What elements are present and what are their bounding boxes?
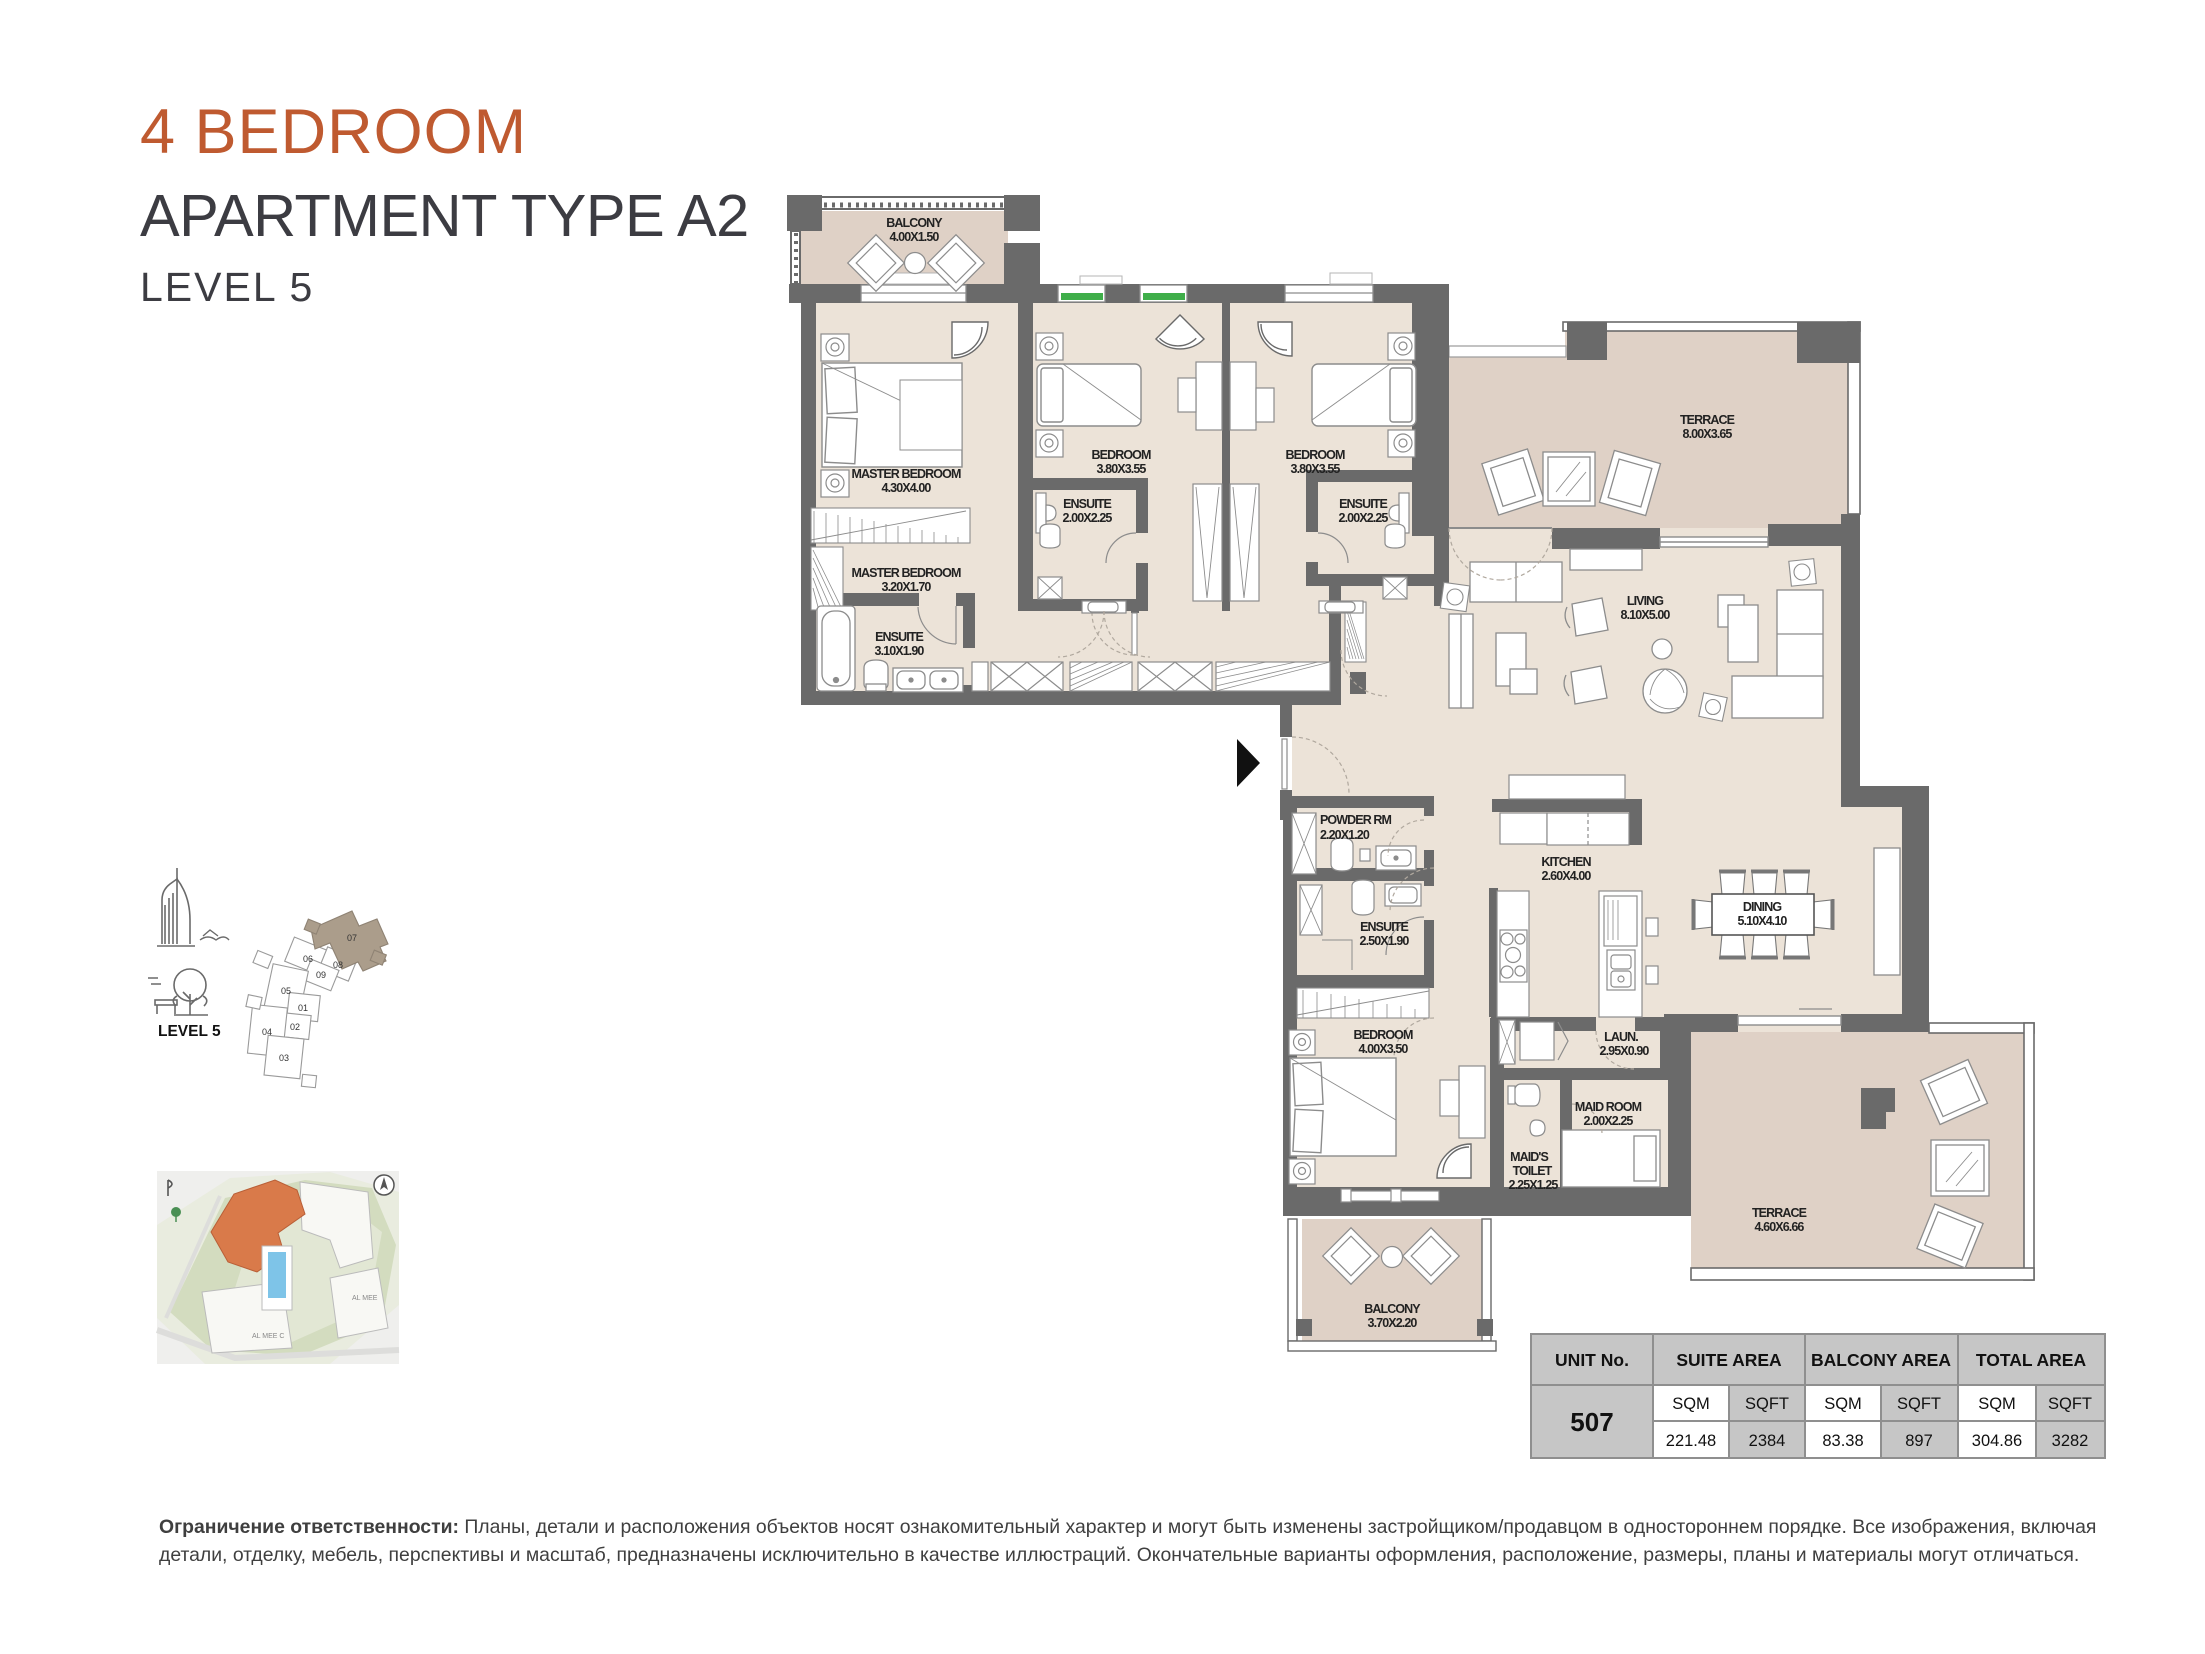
svg-text:UNIT No.: UNIT No.: [1555, 1350, 1629, 1370]
svg-text:221.48: 221.48: [1666, 1432, 1716, 1450]
svg-text:05: 05: [281, 986, 291, 996]
svg-text:SQM: SQM: [1672, 1395, 1710, 1413]
svg-text:507: 507: [1570, 1407, 1613, 1437]
svg-text:3.10X1.90: 3.10X1.90: [875, 644, 925, 658]
svg-text:3.70X2.20: 3.70X2.20: [1368, 1316, 1418, 1330]
svg-text:08: 08: [333, 960, 343, 970]
svg-text:07: 07: [347, 933, 357, 943]
svg-text:MASTER BEDROOM: MASTER BEDROOM: [852, 566, 961, 580]
svg-text:BALCONY AREA: BALCONY AREA: [1811, 1350, 1951, 1370]
svg-text:3.20X1.70: 3.20X1.70: [882, 580, 932, 594]
svg-text:2.25X1.25: 2.25X1.25: [1509, 1178, 1559, 1192]
svg-text:2.95X0.90: 2.95X0.90: [1600, 1044, 1650, 1058]
svg-text:LAUN.: LAUN.: [1604, 1030, 1638, 1044]
svg-text:TOTAL AREA: TOTAL AREA: [1976, 1350, 2087, 1370]
svg-text:897: 897: [1905, 1432, 1933, 1450]
svg-text:KITCHEN: KITCHEN: [1541, 855, 1591, 869]
svg-text:MAID'S: MAID'S: [1510, 1150, 1548, 1164]
svg-text:TERRACE: TERRACE: [1680, 413, 1735, 427]
svg-text:TERRACE: TERRACE: [1752, 1206, 1807, 1220]
svg-text:ENSUITE: ENSUITE: [1063, 497, 1111, 511]
svg-text:LIVING: LIVING: [1627, 594, 1663, 608]
svg-text:2.00X2.25: 2.00X2.25: [1339, 511, 1389, 525]
svg-text:MASTER BEDROOM: MASTER BEDROOM: [852, 467, 961, 481]
svg-text:SQFT: SQFT: [2048, 1395, 2092, 1413]
svg-text:83.38: 83.38: [1822, 1432, 1863, 1450]
svg-text:5.10X4.10: 5.10X4.10: [1738, 914, 1788, 928]
svg-text:01: 01: [298, 1003, 308, 1013]
svg-text:8.00X3.65: 8.00X3.65: [1683, 427, 1733, 441]
svg-text:SUITE AREA: SUITE AREA: [1676, 1350, 1782, 1370]
svg-text:8.10X5.00: 8.10X5.00: [1621, 608, 1671, 622]
svg-text:BEDROOM: BEDROOM: [1354, 1028, 1413, 1042]
svg-text:AL MEE: AL MEE: [352, 1295, 378, 1302]
svg-text:4.00X3.50: 4.00X3.50: [1359, 1042, 1409, 1056]
svg-text:SQFT: SQFT: [1897, 1395, 1941, 1413]
svg-text:MAID ROOM: MAID ROOM: [1575, 1100, 1642, 1114]
svg-text:AL MEE C: AL MEE C: [252, 1333, 284, 1340]
svg-text:09: 09: [316, 970, 326, 980]
svg-text:03: 03: [279, 1053, 289, 1063]
svg-text:BEDROOM: BEDROOM: [1092, 448, 1151, 462]
svg-text:DINING: DINING: [1743, 900, 1782, 914]
svg-text:ENSUITE: ENSUITE: [1339, 497, 1387, 511]
svg-text:BEDROOM: BEDROOM: [1286, 448, 1345, 462]
svg-text:3.80X3.55: 3.80X3.55: [1291, 462, 1341, 476]
svg-text:2.60X4.00: 2.60X4.00: [1542, 869, 1592, 883]
svg-text:LEVEL 5: LEVEL 5: [158, 1023, 221, 1040]
svg-text:2384: 2384: [1749, 1432, 1786, 1450]
svg-text:BALCONY: BALCONY: [886, 216, 943, 230]
svg-text:ENSUITE: ENSUITE: [1360, 920, 1408, 934]
svg-text:2.00X2.25: 2.00X2.25: [1584, 1114, 1634, 1128]
svg-text:BALCONY: BALCONY: [1364, 1302, 1421, 1316]
svg-text:04: 04: [262, 1027, 272, 1037]
svg-text:02: 02: [290, 1022, 300, 1032]
svg-text:3282: 3282: [2052, 1432, 2089, 1450]
svg-text:SQFT: SQFT: [1745, 1395, 1789, 1413]
svg-text:2.50X1.90: 2.50X1.90: [1360, 934, 1410, 948]
svg-text:2.00X2.25: 2.00X2.25: [1063, 511, 1113, 525]
svg-text:SQM: SQM: [1824, 1395, 1862, 1413]
svg-text:POWDER RM: POWDER RM: [1320, 813, 1392, 827]
svg-text:304.86: 304.86: [1972, 1432, 2022, 1450]
svg-text:4.60X6.66: 4.60X6.66: [1755, 1220, 1805, 1234]
svg-text:06: 06: [303, 954, 313, 964]
svg-text:SQM: SQM: [1978, 1395, 2016, 1413]
svg-text:ENSUITE: ENSUITE: [875, 630, 923, 644]
svg-text:4.30X4.00: 4.30X4.00: [882, 481, 932, 495]
svg-text:TOILET: TOILET: [1513, 1164, 1553, 1178]
svg-text:3.80X3.55: 3.80X3.55: [1097, 462, 1147, 476]
svg-text:2.20X1.20: 2.20X1.20: [1320, 828, 1370, 842]
svg-text:4.00X1.50: 4.00X1.50: [890, 230, 940, 244]
